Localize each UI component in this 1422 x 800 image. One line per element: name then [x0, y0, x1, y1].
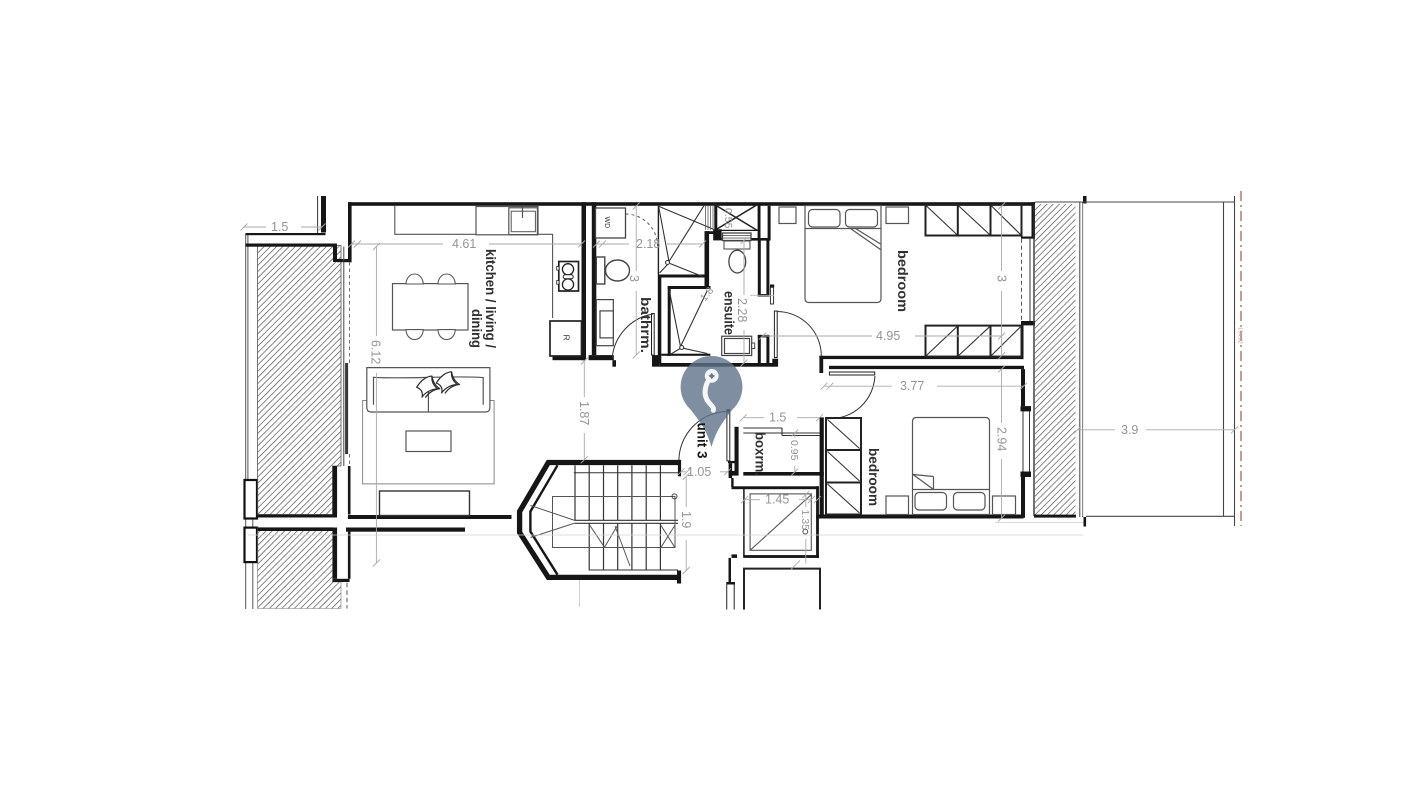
- svg-text:1.5: 1.5: [769, 411, 786, 425]
- svg-text:bedroom: bedroom: [866, 448, 882, 506]
- svg-text:unit 3: unit 3: [695, 423, 711, 459]
- svg-text:3.9: 3.9: [1121, 423, 1138, 437]
- svg-text:3: 3: [995, 275, 1009, 282]
- svg-text:3: 3: [627, 275, 641, 282]
- svg-text:4.61: 4.61: [452, 237, 476, 251]
- svg-text:boxrm.: boxrm.: [753, 432, 769, 476]
- svg-text:4.95: 4.95: [876, 329, 900, 343]
- svg-text:1.45: 1.45: [765, 493, 789, 507]
- svg-text:R: R: [562, 335, 572, 341]
- svg-text:WD: WD: [603, 217, 610, 229]
- svg-text:0.95: 0.95: [788, 440, 800, 461]
- svg-text:1.5: 1.5: [271, 220, 288, 234]
- svg-text:bedroom: bedroom: [895, 250, 911, 312]
- svg-text:3.77: 3.77: [900, 379, 924, 393]
- svg-text:1.05: 1.05: [687, 465, 711, 479]
- svg-text:0.55: 0.55: [722, 208, 734, 229]
- svg-text:dining: dining: [469, 309, 485, 348]
- svg-text:ensuite: ensuite: [722, 291, 738, 335]
- svg-text:154.02: 154.02: [1237, 327, 1243, 344]
- svg-text:bathrm.: bathrm.: [638, 297, 654, 353]
- svg-text:1.35: 1.35: [799, 510, 811, 531]
- svg-text:1.87: 1.87: [577, 401, 591, 425]
- svg-text:6.12: 6.12: [369, 340, 383, 364]
- svg-text:2.18: 2.18: [636, 237, 660, 251]
- svg-text:1.9: 1.9: [679, 511, 693, 528]
- svg-text:2.94: 2.94: [995, 427, 1009, 451]
